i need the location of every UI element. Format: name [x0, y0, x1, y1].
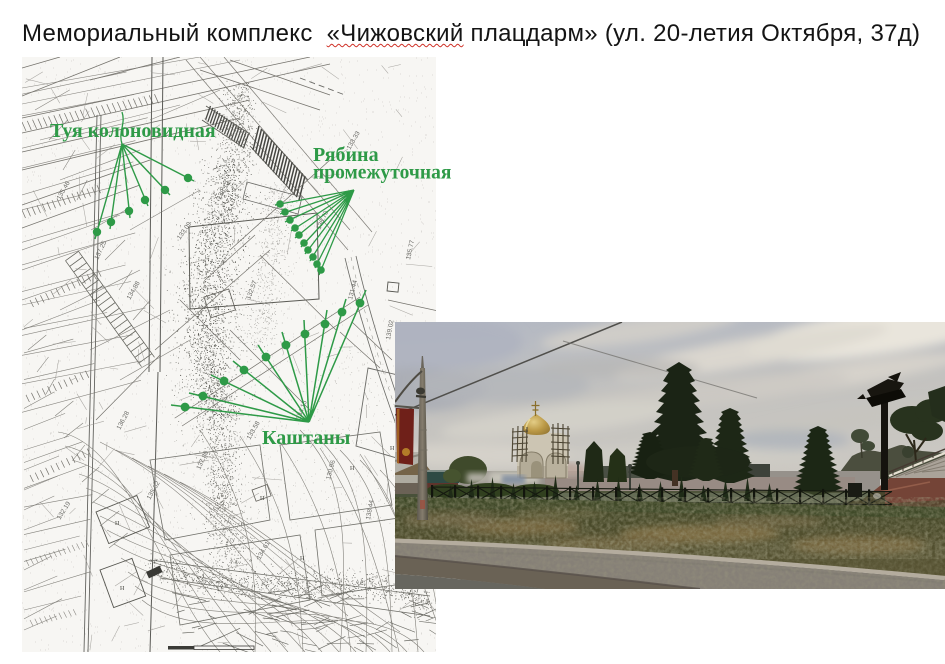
svg-text:промежуточная: промежуточная [313, 163, 452, 184]
svg-text:н: н [120, 583, 125, 592]
svg-text:н: н [215, 303, 220, 312]
svg-text:н: н [390, 443, 395, 452]
svg-text:н: н [260, 493, 265, 502]
svg-text:Каштаны: Каштаны [262, 427, 351, 449]
svg-text:Туя колоновидная: Туя колоновидная [50, 120, 216, 142]
svg-text:н: н [115, 518, 120, 527]
svg-text:н: н [350, 463, 355, 472]
